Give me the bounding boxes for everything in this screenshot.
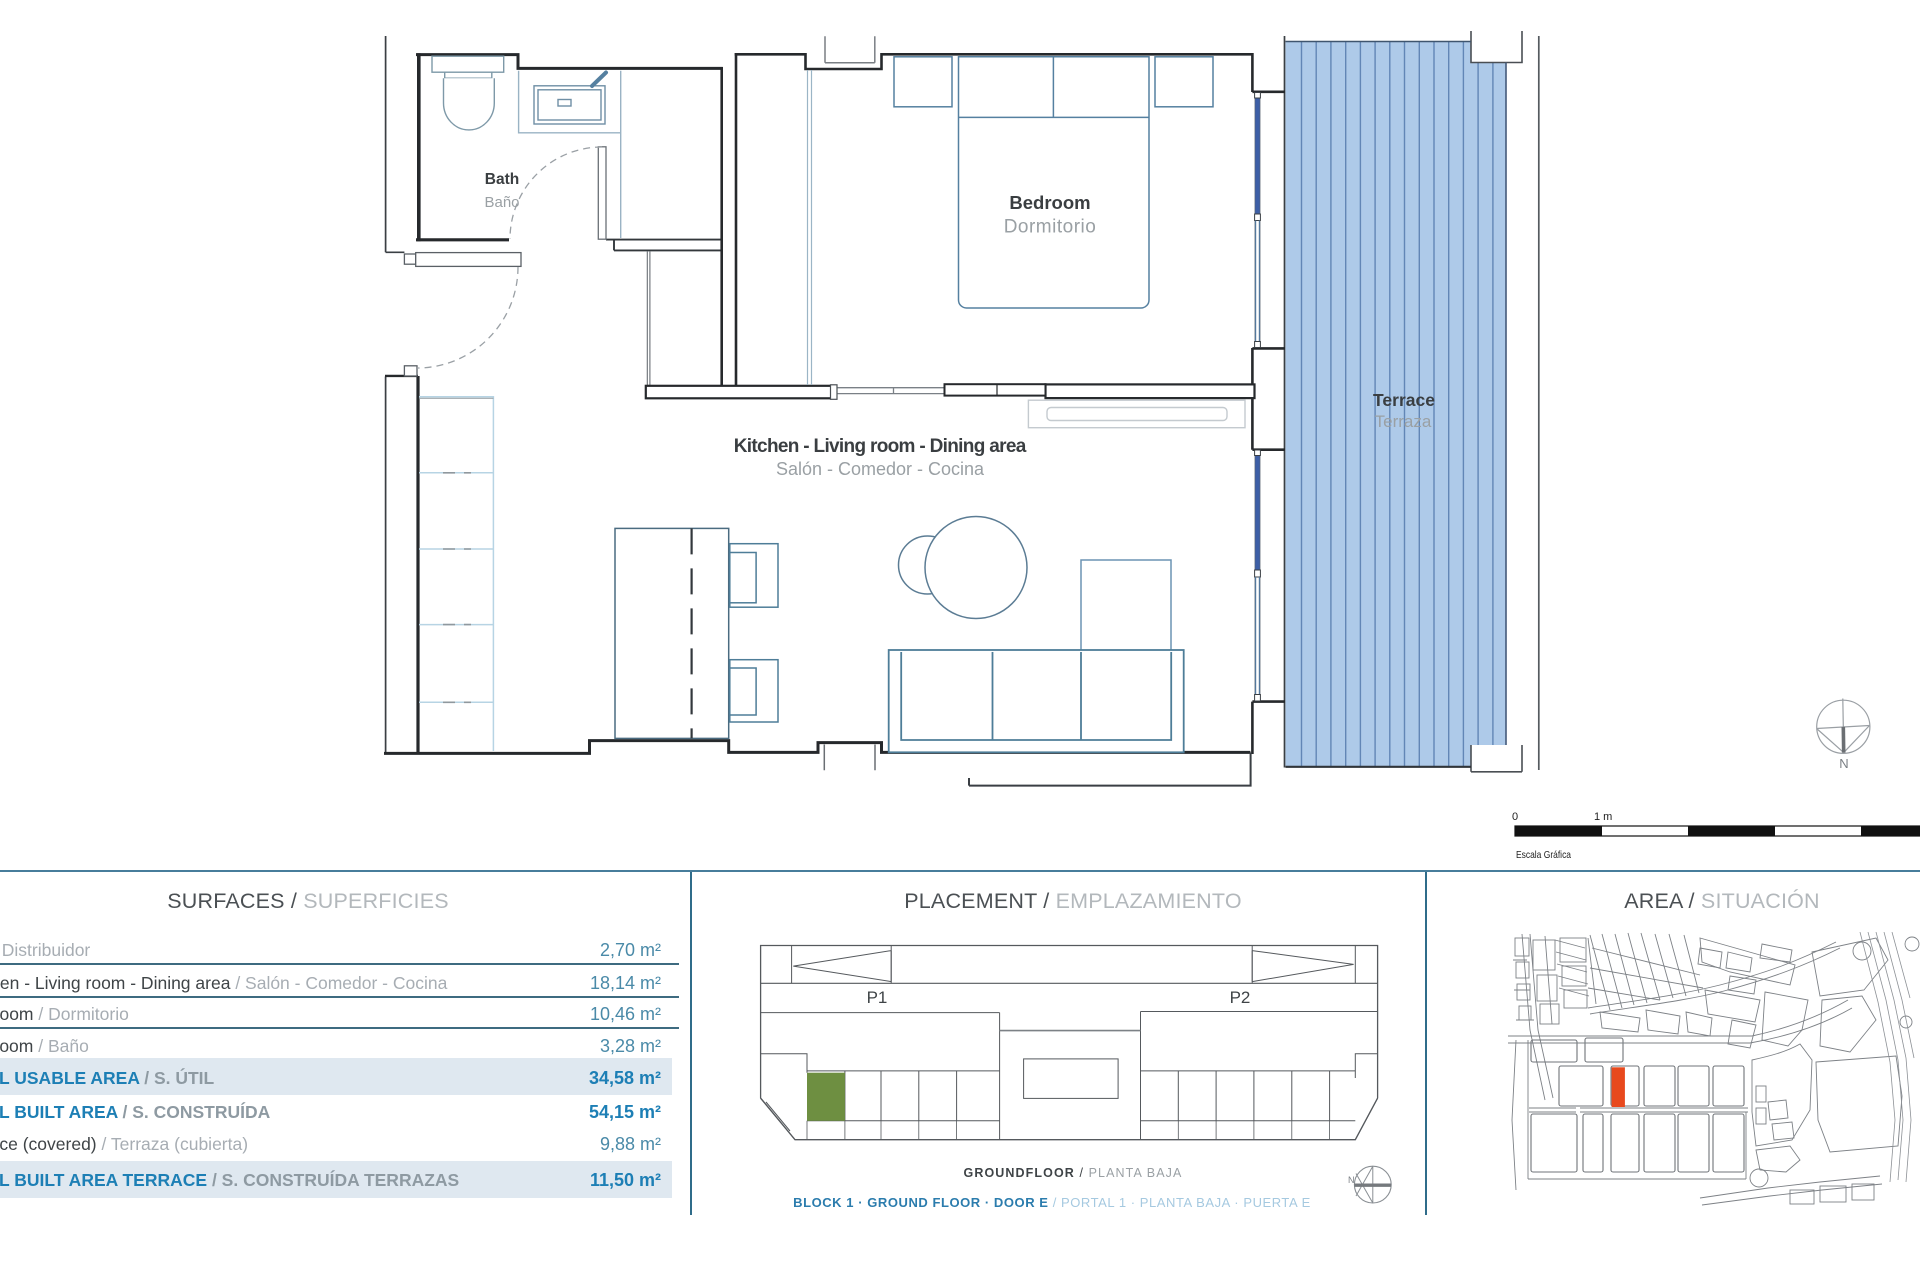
svg-text:Baño: Baño [484,194,519,211]
svg-text:Bath: Bath [485,171,519,188]
svg-text:Bedroom: Bedroom [1009,192,1090,213]
svg-text:Terraza: Terraza [1375,412,1432,431]
svg-text:P2: P2 [1230,988,1251,1007]
svg-text:N: N [1348,1175,1355,1185]
svg-text:1 m: 1 m [1594,811,1612,823]
svg-text:N: N [1839,756,1848,771]
svg-text:Terrace: Terrace [1373,390,1435,410]
svg-text:Kitchen - Living room - Dining: Kitchen - Living room - Dining area [734,436,1027,457]
svg-text:Dormitorio: Dormitorio [1004,217,1097,238]
svg-text:P1: P1 [867,988,888,1007]
svg-text:Salón - Comedor - Cocina: Salón - Comedor - Cocina [776,459,985,479]
svg-text:Escala Gráfica: Escala Gráfica [1516,849,1571,861]
svg-text:0: 0 [1512,811,1518,823]
